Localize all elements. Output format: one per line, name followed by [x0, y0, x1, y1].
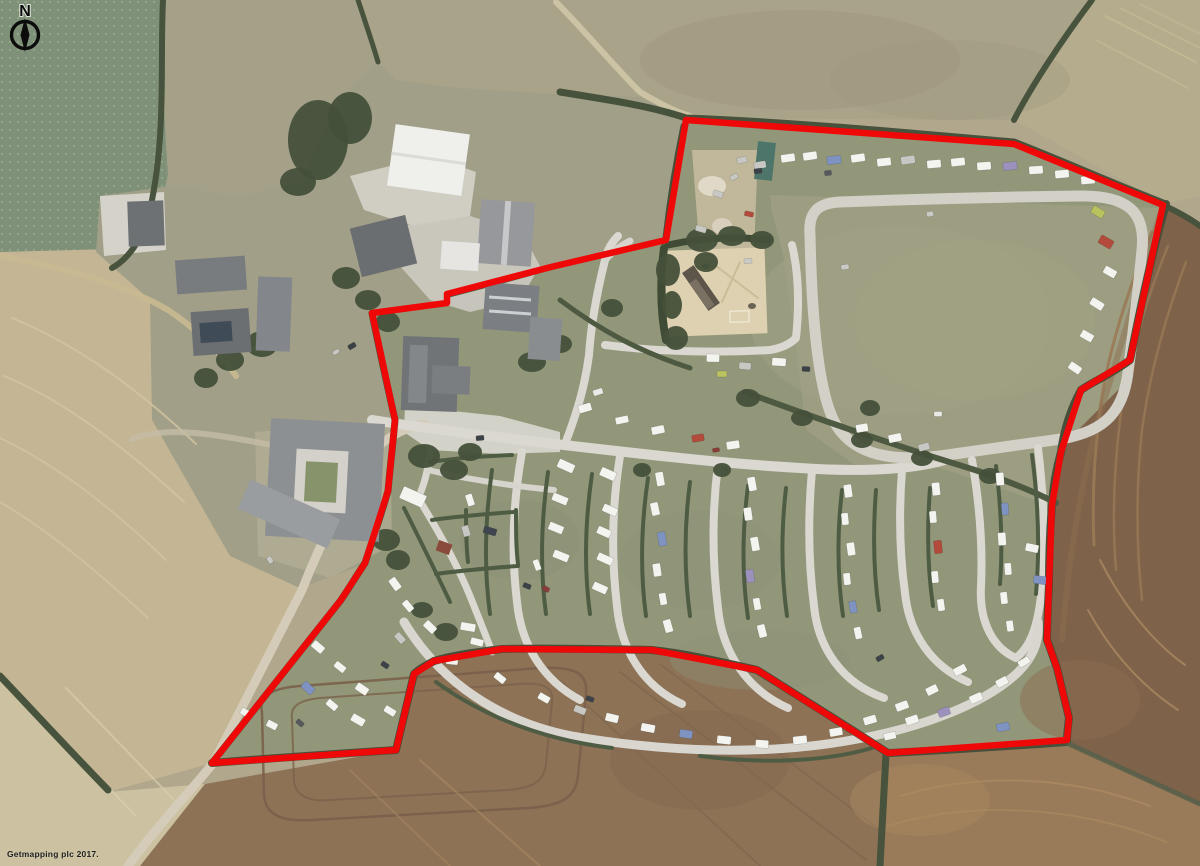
- caravan: [717, 735, 732, 744]
- caravan: [996, 472, 1005, 486]
- caravan: [755, 740, 769, 749]
- attribution-text: Getmapping plc 2017.: [7, 849, 99, 859]
- caravan: [1004, 563, 1012, 575]
- caravan: [927, 159, 942, 168]
- tree-clump: [332, 267, 360, 289]
- caravan: [793, 735, 808, 744]
- caravan: [706, 354, 719, 362]
- building: [440, 241, 480, 272]
- caravan: [998, 532, 1007, 546]
- caravan: [745, 569, 755, 583]
- tree-clump: [601, 299, 623, 317]
- caravan: [1001, 503, 1009, 515]
- caravan: [951, 157, 966, 166]
- tree-clump: [386, 550, 410, 570]
- building: [408, 345, 428, 404]
- caravan: [743, 507, 753, 521]
- tree-clump: [736, 389, 760, 407]
- tree-clump: [458, 443, 482, 461]
- building: [127, 200, 165, 246]
- caravan: [901, 155, 916, 165]
- building: [528, 317, 563, 361]
- caravan: [846, 542, 856, 556]
- caravan: [931, 571, 939, 584]
- caravan: [843, 484, 853, 498]
- tree-clump: [408, 444, 440, 468]
- tree-clump: [860, 400, 880, 416]
- caravan: [937, 599, 946, 612]
- caravan: [803, 151, 818, 161]
- tree-clump: [694, 252, 718, 272]
- vehicle: [712, 447, 720, 452]
- caravan: [717, 371, 727, 377]
- tree-clump: [633, 463, 651, 477]
- tree-clump: [791, 410, 813, 426]
- vehicle: [802, 366, 810, 371]
- caravan: [1003, 161, 1018, 170]
- vehicle: [744, 258, 752, 264]
- caravan: [843, 573, 851, 586]
- caravan: [827, 155, 842, 164]
- tree-clump: [440, 460, 468, 480]
- tree-clump: [411, 602, 433, 618]
- vehicle: [754, 168, 763, 174]
- north-arrow-icon: N: [3, 1, 51, 61]
- caravan: [931, 482, 940, 496]
- caravan: [772, 358, 787, 367]
- caravan: [726, 440, 740, 450]
- caravan: [1006, 620, 1014, 632]
- caravan: [781, 153, 796, 163]
- caravan: [977, 162, 992, 171]
- tree-clump: [194, 368, 218, 388]
- tree-clump: [911, 450, 933, 466]
- tree-clump: [750, 231, 774, 249]
- vehicle: [476, 435, 484, 441]
- caravan: [652, 563, 662, 577]
- caravan: [933, 540, 942, 554]
- caravan: [1055, 169, 1070, 178]
- caravan: [1000, 592, 1008, 605]
- caravan: [855, 423, 868, 433]
- vehicle: [934, 412, 942, 417]
- tree-clump: [656, 254, 680, 286]
- caravan: [739, 362, 751, 370]
- aerial-map: N Getmapping plc 2017.: [0, 0, 1200, 866]
- caravan: [877, 157, 892, 166]
- building: [304, 461, 338, 503]
- tree-clump: [851, 432, 873, 448]
- tree-clump: [355, 290, 381, 310]
- tree-clump: [718, 226, 746, 246]
- building: [256, 276, 293, 351]
- tree-clump: [664, 326, 688, 350]
- tree-clump: [280, 168, 316, 196]
- caravan: [841, 513, 849, 526]
- vehicle: [926, 211, 934, 217]
- building: [432, 365, 471, 394]
- tree-clump: [328, 92, 372, 144]
- playground: [748, 303, 756, 309]
- caravan: [851, 153, 866, 163]
- caravan: [929, 511, 937, 524]
- vehicle: [824, 170, 831, 176]
- tree-clump: [434, 623, 458, 641]
- tree-clump: [713, 463, 731, 477]
- compass-north-label: N: [19, 3, 31, 20]
- building: [199, 321, 232, 343]
- field-mark: [1020, 660, 1140, 740]
- aerial-photo: [0, 0, 1200, 866]
- vehicle: [841, 264, 850, 270]
- caravan: [679, 729, 693, 739]
- tree-clump: [662, 291, 682, 319]
- caravan: [1029, 166, 1044, 175]
- hedgerow: [516, 510, 518, 564]
- field-mark: [855, 240, 1095, 400]
- building: [175, 256, 247, 295]
- field-mark: [850, 764, 990, 836]
- caravan: [1033, 575, 1047, 585]
